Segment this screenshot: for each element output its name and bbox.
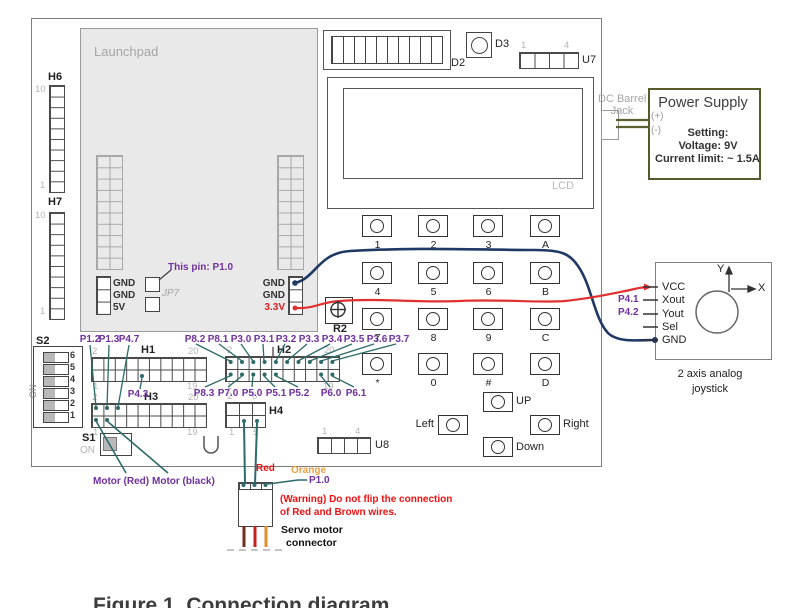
keypad-label-5: 5	[418, 286, 449, 298]
pin-label-p70: P7.0	[216, 388, 240, 399]
keypad-label-1: 1	[362, 239, 393, 251]
keypad-button-5	[418, 262, 448, 284]
this-pin-annotation: This pin: P1.0	[168, 262, 233, 273]
h1-tr-number: 20	[188, 346, 199, 357]
keypad-label-9: 9	[473, 332, 504, 344]
keypad-button-star	[362, 353, 392, 375]
power-supply-wires	[616, 120, 650, 127]
pin-label-p51: P5.1	[264, 388, 288, 399]
pin-label-p31: P3.1	[252, 334, 276, 345]
keypad-button-1	[362, 215, 392, 237]
s2-number-3: 3	[70, 386, 75, 396]
pin-label-p34: P3.4	[320, 334, 344, 345]
keypad-button-d	[530, 353, 560, 375]
d3-circle	[471, 37, 488, 54]
joystick-pin-sel: Sel	[662, 321, 678, 333]
h7-header	[49, 212, 65, 320]
servo-caption-line2: connector	[286, 537, 337, 549]
keypad-button-0	[418, 353, 448, 375]
joystick-p41-label: P4.1	[618, 294, 638, 305]
keypad-label-hash: #	[473, 377, 504, 389]
lcd-screen	[343, 88, 583, 179]
u8-header	[317, 437, 371, 454]
keypad-button-6	[473, 262, 503, 284]
joystick-p42-label: P4.2	[618, 307, 638, 318]
u8-first-number: 1	[322, 426, 327, 437]
power-current-label: Current limit: ~ 1.5A	[655, 153, 755, 165]
h7-label: H7	[48, 196, 62, 208]
pin-label-p81: P8.1	[206, 334, 230, 345]
h1-tl-number: 2	[92, 346, 97, 357]
power-voltage-label: Voltage: 9V	[663, 140, 753, 152]
keypad-button-c	[530, 308, 560, 330]
s2-switch-6	[43, 352, 69, 363]
keypad-button-7	[362, 308, 392, 330]
servo-warning-line1: (Warning) Do not flip the connection	[280, 494, 452, 505]
launchpad-label: Launchpad	[94, 44, 158, 59]
s2-number-2: 2	[70, 398, 75, 408]
left-power-header	[96, 276, 111, 315]
h3-br-number: 19	[187, 427, 198, 438]
h7-top-number: 10	[35, 210, 46, 221]
lcd-label: LCD	[552, 180, 574, 192]
h7-bottom-number: 1	[40, 306, 45, 317]
connection-diagram: Launchpad GND GND 5V JP7 This pin: P1.0 …	[0, 0, 800, 608]
u7-first-number: 1	[521, 40, 526, 51]
h2-tl-number: 2	[227, 345, 232, 356]
u7-header	[519, 52, 579, 69]
pin-label-p33: P3.3	[297, 334, 321, 345]
pin-label-p37: P3.7	[387, 334, 411, 345]
servo-warning-line2: of Red and Brown wires.	[280, 507, 397, 518]
h1-bl-number: 1	[93, 381, 98, 392]
jp7-pin-top	[145, 277, 160, 292]
pin-label-p35: P3.5	[342, 334, 366, 345]
pin-label-p61: P6.1	[344, 388, 368, 399]
servo-red-wire-label: Red	[256, 463, 275, 474]
u8-last-number: 4	[355, 426, 360, 437]
h1-label: H1	[141, 344, 155, 356]
s1-on-label: ON	[80, 445, 95, 456]
pin-label-p60: P6.0	[319, 388, 343, 399]
keypad-button-8	[418, 308, 448, 330]
keypad-label-b: B	[530, 286, 561, 298]
s2-number-4: 4	[70, 374, 75, 384]
servo-wires	[244, 526, 266, 547]
launchpad-pin-grid-right	[277, 155, 304, 270]
keypad-button-b	[530, 262, 560, 284]
servo-p10-label: P1.0	[309, 475, 330, 486]
right-pin-3v3-label: 3.3V	[245, 302, 285, 313]
keypad-label-2: 2	[418, 239, 449, 251]
right-pin-gnd1-label: GND	[245, 278, 285, 289]
right-power-header	[288, 276, 303, 315]
s2-switch-3	[43, 388, 69, 399]
h2-tr-number: 20	[324, 345, 335, 356]
joystick-pin-vcc: VCC	[662, 281, 685, 293]
keypad-label-0: 0	[418, 377, 449, 389]
s2-number-6: 6	[70, 350, 75, 360]
keypad-button-a	[530, 215, 560, 237]
joystick-pin-yout: Yout	[662, 308, 684, 320]
s2-on-label: ON	[28, 385, 38, 399]
pin-label-p50: P5.0	[240, 388, 264, 399]
keypad-button-4	[362, 262, 392, 284]
left-pin-5v-label: 5V	[113, 302, 125, 313]
s2-number-1: 1	[70, 410, 75, 420]
motor-red-label: Motor (Red)	[93, 476, 149, 487]
s2-label: S2	[36, 335, 49, 347]
h1-header	[91, 357, 207, 382]
u8-label: U8	[375, 439, 389, 451]
u7-label: U7	[582, 54, 596, 66]
pin-label-p36: P3.6	[365, 334, 389, 345]
left-button	[438, 415, 468, 435]
right-button	[530, 415, 560, 435]
d3-label: D3	[495, 38, 509, 50]
power-setting-label: Setting:	[663, 127, 753, 139]
keypad-label-6: 6	[473, 286, 504, 298]
dc-barrel-jack-label: DC BarrelJack	[598, 93, 646, 117]
pin-label-p52: P5.2	[287, 388, 311, 399]
pin-label-p83: P8.3	[192, 388, 216, 399]
down-label: Down	[516, 441, 544, 453]
keypad-button-hash	[473, 353, 503, 375]
s2-switch-2	[43, 400, 69, 411]
keypad-label-8: 8	[418, 332, 449, 344]
joystick-axis-x-label: X	[758, 282, 765, 294]
keypad-label-3: 3	[473, 239, 504, 251]
pin-label-p47: P4.7	[117, 334, 141, 345]
vcc-wire-arrowhead	[644, 284, 652, 291]
h4-br-number: 5	[253, 427, 258, 438]
right-label: Right	[563, 418, 589, 430]
d2-label: D2	[451, 57, 465, 69]
d2-segments	[331, 36, 443, 64]
up-label: UP	[516, 395, 531, 407]
u7-last-number: 4	[564, 40, 569, 51]
h6-label: H6	[48, 71, 62, 83]
h6-top-number: 10	[35, 84, 46, 95]
s1-switch	[100, 433, 132, 456]
joystick-pin-gnd: GND	[662, 334, 686, 346]
keypad-button-2	[418, 215, 448, 237]
left-pin-gnd2-label: GND	[113, 290, 135, 301]
up-button	[483, 392, 513, 412]
keypad-label-4: 4	[362, 286, 393, 298]
left-label: Left	[404, 418, 434, 430]
s1-slider	[103, 437, 117, 451]
h4-header	[225, 402, 266, 428]
launchpad-pin-grid-left	[96, 155, 123, 270]
r2-potentiometer	[325, 297, 353, 324]
pin-label-p82: P8.2	[183, 334, 207, 345]
s2-switch-4	[43, 376, 69, 387]
jp7-pin-bottom	[145, 297, 160, 312]
d3-led	[466, 32, 492, 58]
keypad-label-d: D	[530, 377, 561, 389]
power-supply-title: Power Supply	[651, 95, 755, 111]
left-pin-gnd1-label: GND	[113, 278, 135, 289]
power-plus-label: (+)	[651, 111, 664, 122]
h4-label: H4	[269, 405, 283, 417]
h2-header	[225, 356, 340, 382]
s2-switch-1	[43, 412, 69, 423]
s2-switch-5	[43, 364, 69, 375]
h6-bottom-number: 1	[40, 180, 45, 191]
figure-caption: Figure 1. Connection diagram	[93, 594, 389, 608]
jp7-label: JP7	[162, 288, 179, 299]
servo-caption-line1: Servo motor	[281, 524, 343, 536]
s1-label: S1	[82, 432, 95, 444]
keypad-label-c: C	[530, 332, 561, 344]
down-button	[483, 437, 513, 457]
joystick-pin-xout: Xout	[662, 294, 685, 306]
h6-header	[49, 85, 65, 193]
h3-tl-number: 2	[92, 392, 97, 403]
pin-label-p32: P3.2	[274, 334, 298, 345]
keypad-button-9	[473, 308, 503, 330]
right-pin-gnd2-label: GND	[245, 290, 285, 301]
pin-label-p30: P3.0	[229, 334, 253, 345]
keypad-label-a: A	[530, 239, 561, 251]
s2-number-5: 5	[70, 362, 75, 372]
joystick-axis-y-label: Y	[717, 263, 724, 275]
h3-header	[91, 403, 207, 428]
motor-black-label: Motor (black)	[152, 476, 215, 487]
joystick-caption-line1: 2 axis analog	[660, 368, 760, 380]
power-minus-label: (-)	[651, 125, 661, 136]
joystick-caption-line2: joystick	[660, 383, 760, 395]
servo-connector-body	[238, 489, 273, 527]
pin-label-p43: P4.3	[126, 389, 150, 400]
h4-bl-number: 1	[229, 427, 234, 438]
keypad-button-3	[473, 215, 503, 237]
h2-label: H2	[277, 344, 291, 356]
